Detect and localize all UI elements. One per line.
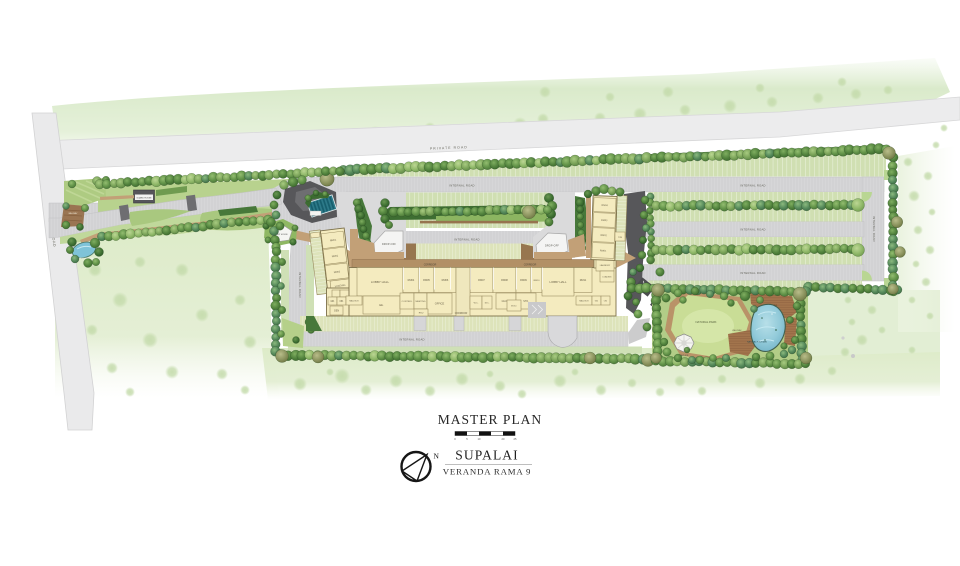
svg-text:MEETING: MEETING bbox=[416, 301, 426, 303]
svg-text:N: N bbox=[434, 452, 440, 461]
svg-text:CONTROL: CONTROL bbox=[402, 301, 413, 303]
svg-text:RM04: RM04 bbox=[601, 204, 608, 207]
svg-text:RM06: RM06 bbox=[442, 279, 449, 282]
svg-text:72B: 72B bbox=[618, 237, 622, 239]
svg-text:RM07: RM07 bbox=[478, 279, 485, 282]
svg-text:NATURAL PARK: NATURAL PARK bbox=[696, 320, 717, 324]
svg-text:LAUNDRY: LAUNDRY bbox=[600, 264, 611, 267]
svg-text:VERANDA RAMA 9: VERANDA RAMA 9 bbox=[443, 467, 531, 477]
svg-text:RM11: RM11 bbox=[580, 279, 587, 282]
svg-text:RM08: RM08 bbox=[501, 279, 508, 282]
svg-text:WALKWAY: WALKWAY bbox=[69, 212, 79, 215]
svg-text:RM09: RM09 bbox=[520, 279, 527, 282]
svg-text:NATURAL FOUNTAIN: NATURAL FOUNTAIN bbox=[747, 341, 767, 344]
svg-text:RSU: RSU bbox=[419, 312, 424, 314]
svg-text:OFFICE: OFFICE bbox=[435, 301, 445, 305]
svg-text:INTERNAL ROAD: INTERNAL ROAD bbox=[872, 216, 876, 242]
svg-text:INTERNAL ROAD: INTERNAL ROAD bbox=[740, 183, 766, 187]
svg-text:GB.: GB. bbox=[330, 300, 334, 303]
svg-text:INTERNAL ROAD: INTERNAL ROAD bbox=[399, 338, 425, 342]
svg-text:RM01: RM01 bbox=[600, 249, 607, 252]
svg-text:MASTER PLAN: MASTER PLAN bbox=[438, 412, 542, 427]
svg-text:GEN: GEN bbox=[334, 310, 339, 313]
svg-text:OB.: OB. bbox=[604, 300, 608, 302]
svg-text:RM10: RM10 bbox=[534, 280, 541, 282]
svg-text:EE.: EE. bbox=[379, 303, 383, 307]
svg-text:SUPALAI: SUPALAI bbox=[455, 448, 518, 463]
svg-text:GB.: GB. bbox=[595, 300, 599, 302]
svg-text:GUARD HOUSE: GUARD HOUSE bbox=[137, 197, 153, 200]
svg-text:INTERNAL ROAD: INTERNAL ROAD bbox=[740, 228, 766, 232]
svg-text:M.C.: M.C. bbox=[485, 302, 490, 304]
svg-text:INTERNAL ROAD: INTERNAL ROAD bbox=[740, 271, 766, 275]
svg-text:RM03: RM03 bbox=[601, 219, 608, 222]
svg-text:RM04: RM04 bbox=[408, 279, 415, 282]
svg-text:W.C.: W.C. bbox=[474, 302, 479, 304]
svg-text:MAIL BOX: MAIL BOX bbox=[349, 299, 359, 302]
svg-text:DROP-OFF: DROP-OFF bbox=[382, 243, 396, 246]
svg-text:M.SO.: M.SO. bbox=[511, 305, 517, 307]
svg-text:OB.: OB. bbox=[339, 300, 343, 303]
svg-text:CORRIDOR: CORRIDOR bbox=[455, 313, 468, 315]
svg-text:INTERNAL ROAD: INTERNAL ROAD bbox=[298, 272, 302, 298]
svg-text:WALKWAY: WALKWAY bbox=[732, 329, 742, 332]
svg-text:CORRIDOR: CORRIDOR bbox=[424, 264, 437, 266]
svg-text:LOADING: LOADING bbox=[602, 275, 611, 278]
svg-text:INTERNAL ROAD: INTERNAL ROAD bbox=[454, 237, 480, 241]
svg-text:RM02: RM02 bbox=[600, 234, 607, 237]
svg-text:CORRIDOR: CORRIDOR bbox=[524, 264, 537, 266]
svg-text:RM05: RM05 bbox=[423, 279, 430, 282]
svg-text:DROP-OFF: DROP-OFF bbox=[545, 245, 559, 248]
svg-text:INTERNAL ROAD: INTERNAL ROAD bbox=[449, 183, 475, 187]
svg-text:LOBBY HALL: LOBBY HALL bbox=[371, 280, 390, 284]
svg-text:LOBBY HALL: LOBBY HALL bbox=[549, 280, 566, 284]
svg-text:MAIL BOX: MAIL BOX bbox=[579, 299, 589, 302]
